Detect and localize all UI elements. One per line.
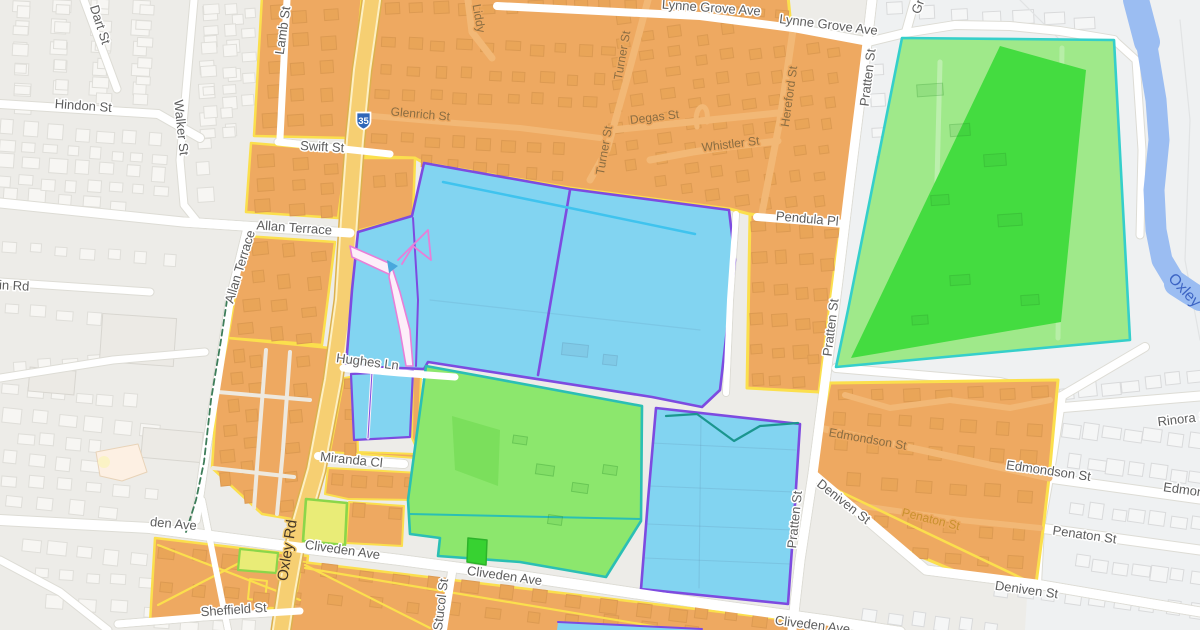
svg-text:35: 35 xyxy=(358,116,369,127)
svg-text:in Rd: in Rd xyxy=(0,277,30,294)
svg-text:Swift St: Swift St xyxy=(300,138,345,155)
